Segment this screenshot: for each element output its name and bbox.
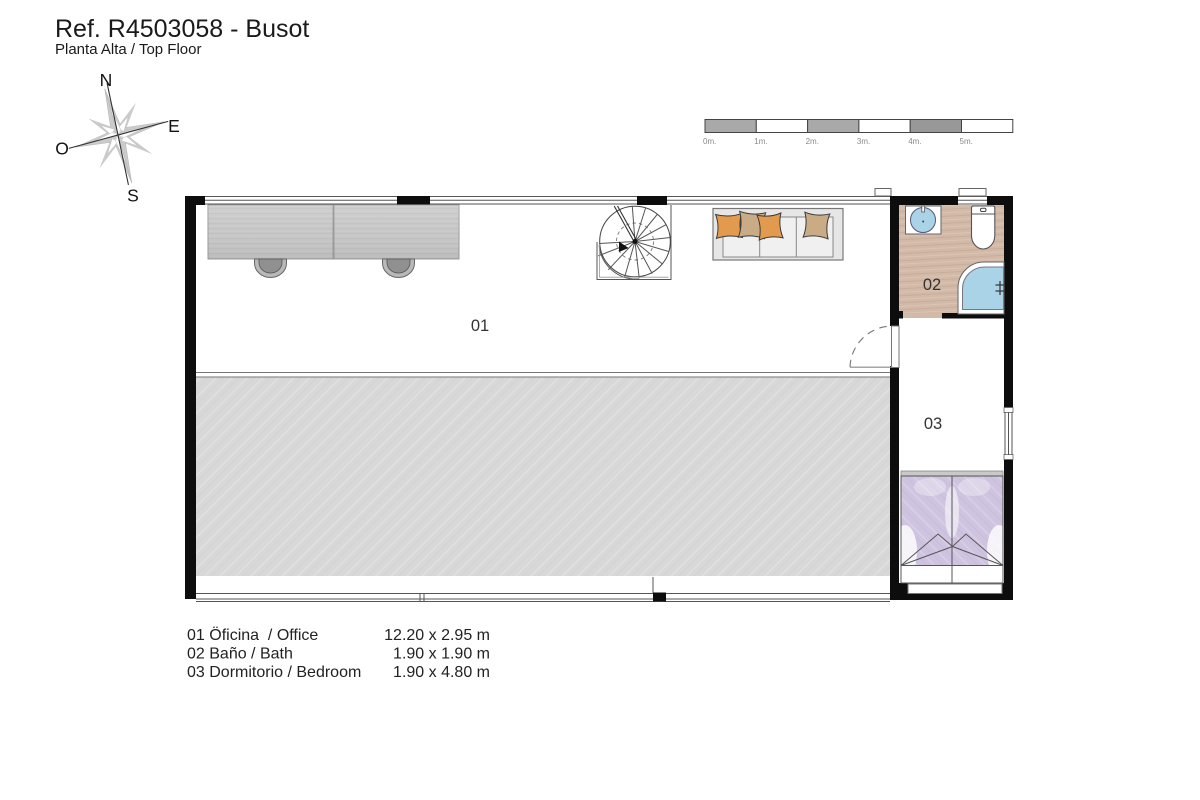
svg-text:02: 02 — [923, 276, 941, 294]
svg-text:01: 01 — [471, 317, 489, 335]
svg-text:2m.: 2m. — [806, 137, 819, 146]
svg-text:03 Dormitorio / Bedroom: 03 Dormitorio / Bedroom — [187, 664, 361, 681]
svg-text:4m.: 4m. — [908, 137, 921, 146]
svg-text:N: N — [100, 70, 113, 90]
svg-text:03: 03 — [924, 415, 942, 433]
svg-text:1.90 x 1.90 m: 1.90 x 1.90 m — [393, 646, 490, 663]
svg-text:1m.: 1m. — [754, 137, 767, 146]
svg-text:12.20 x 2.95 m: 12.20 x 2.95 m — [384, 627, 490, 644]
svg-text:E: E — [168, 116, 180, 136]
svg-text:Planta Alta / Top Floor: Planta Alta / Top Floor — [55, 41, 201, 58]
svg-text:S: S — [127, 186, 139, 206]
svg-text:O: O — [55, 139, 69, 159]
svg-text:5m.: 5m. — [960, 137, 973, 146]
svg-text:1.90 x 4.80 m: 1.90 x 4.80 m — [393, 664, 490, 681]
svg-text:0m.: 0m. — [703, 137, 716, 146]
svg-text:Ref. R4503058 - Busot: Ref. R4503058 - Busot — [55, 15, 309, 43]
svg-text:3m.: 3m. — [857, 137, 870, 146]
svg-text:02 Baño / Bath: 02 Baño / Bath — [187, 646, 293, 663]
svg-text:01 Öficina / Office: 01 Öficina / Office — [187, 626, 318, 644]
